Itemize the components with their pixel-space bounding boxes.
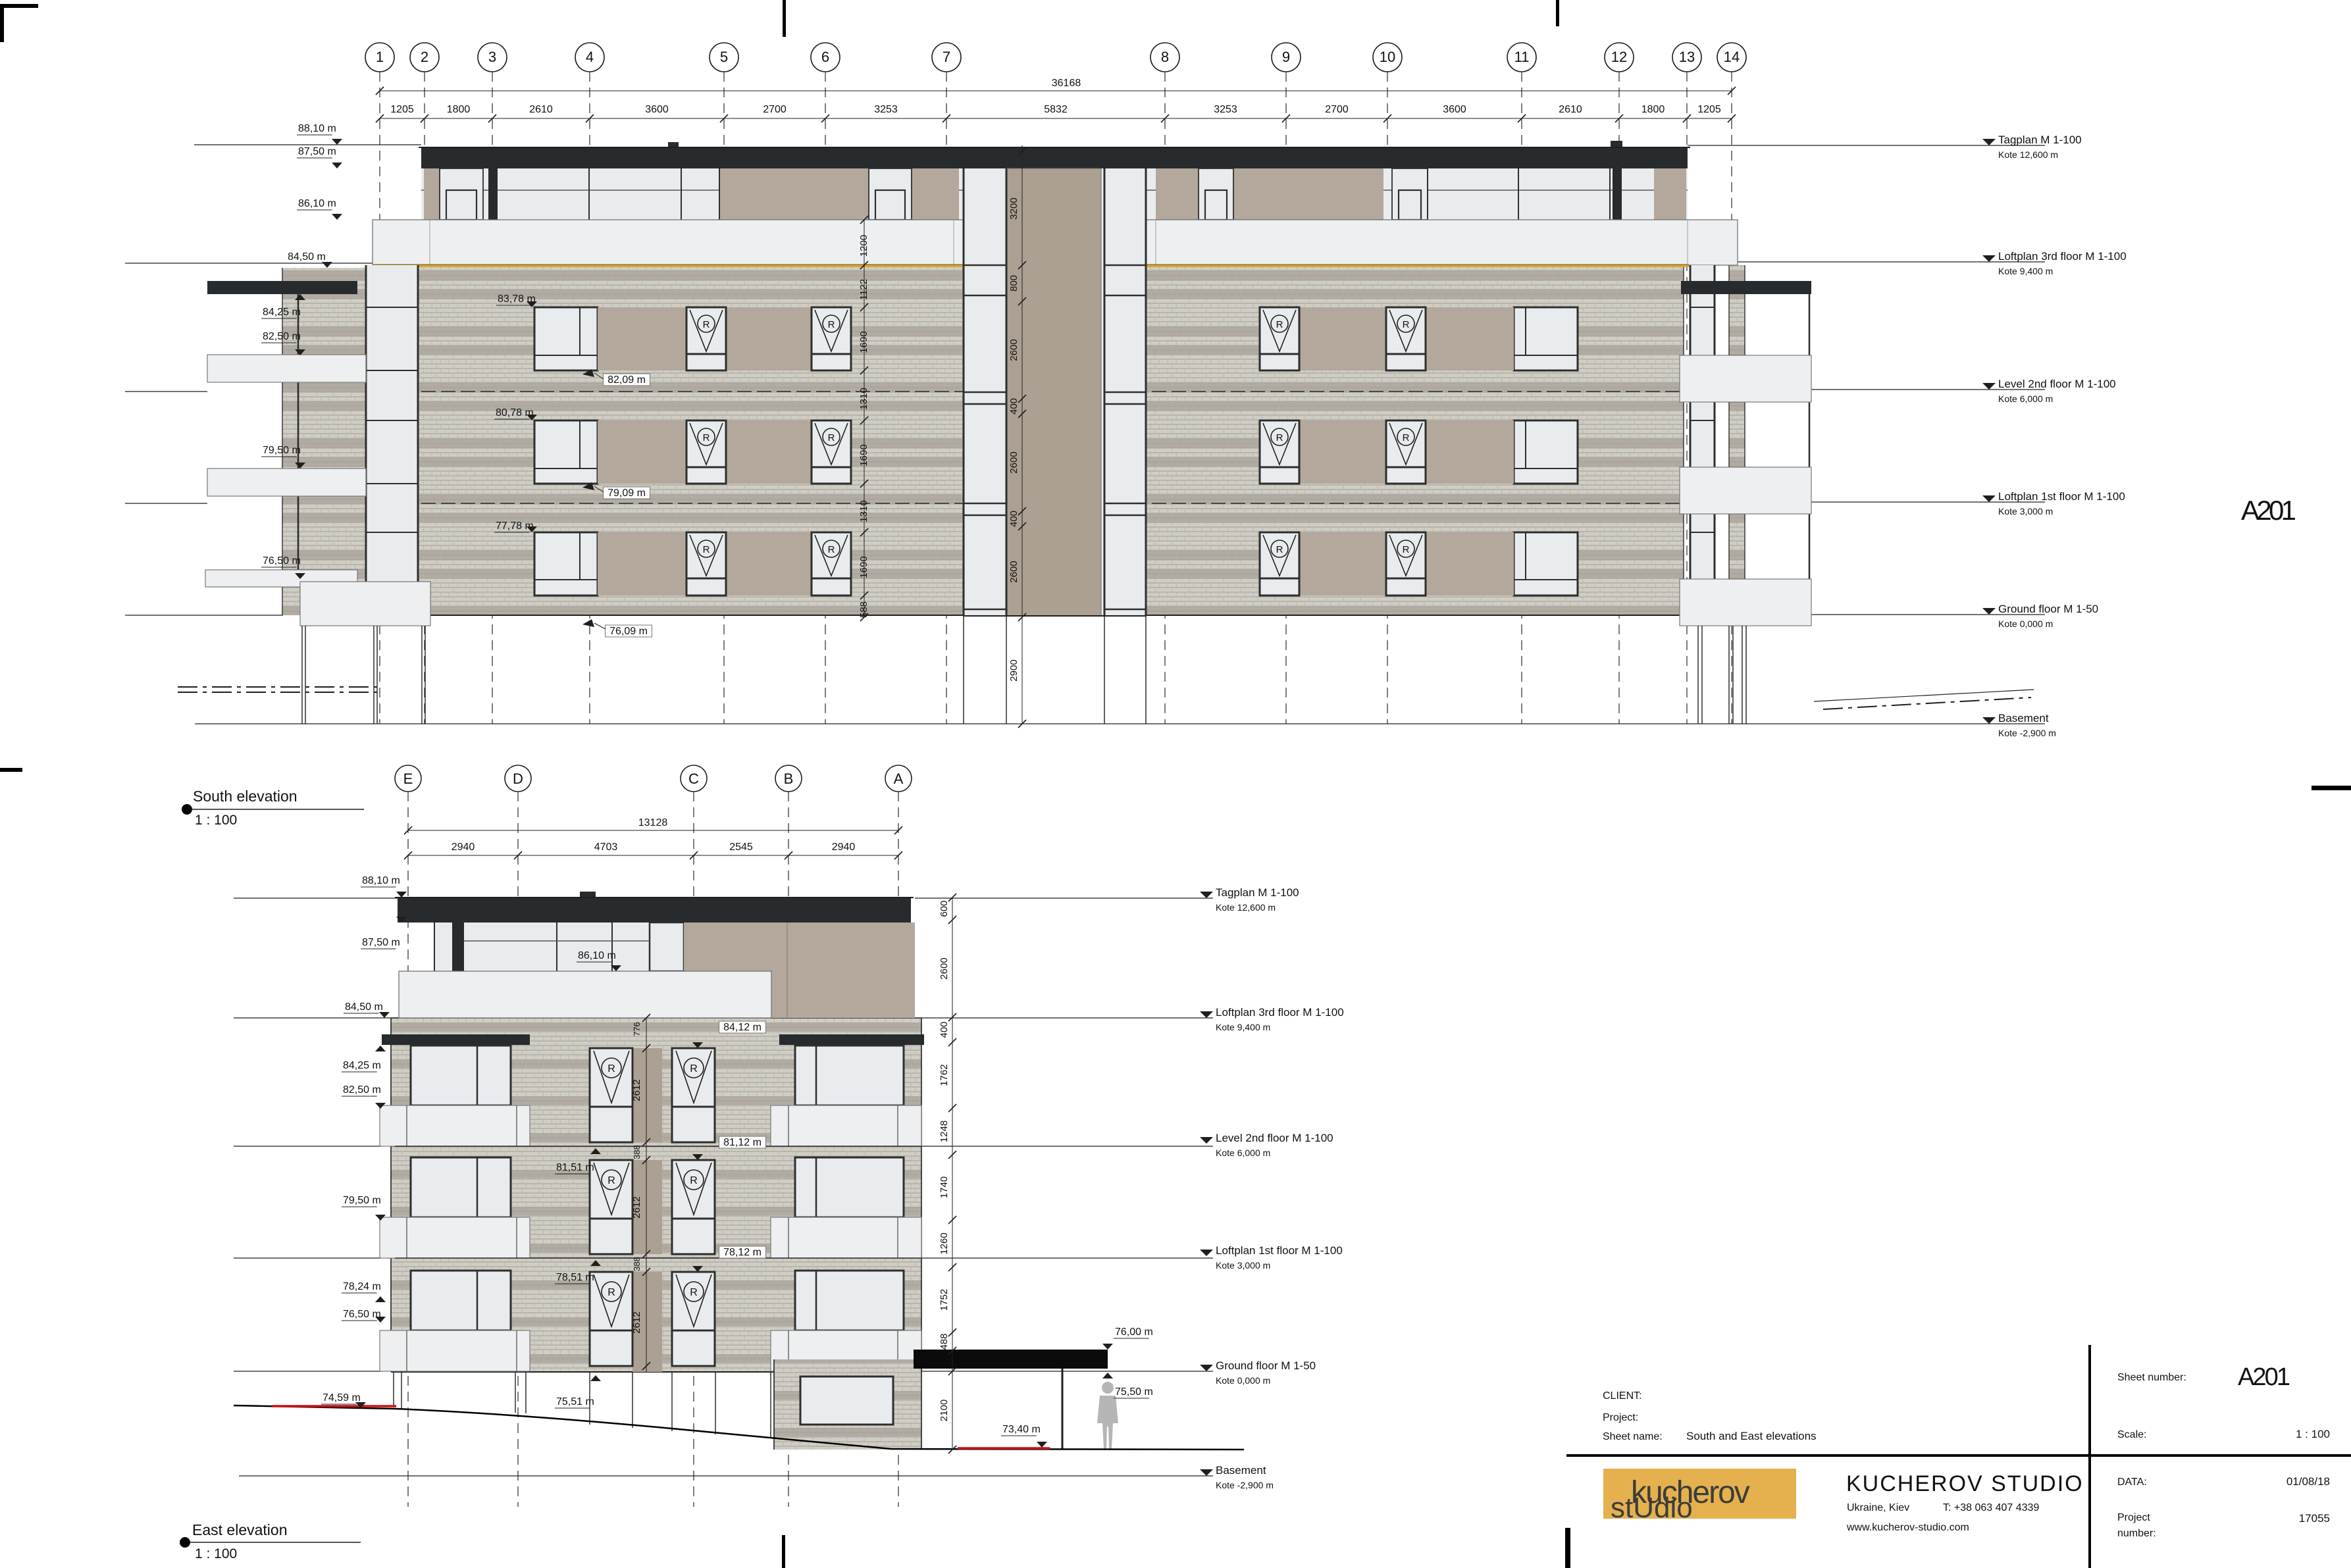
svg-text:79,09 m: 79,09 m [607,488,646,499]
svg-text:1248: 1248 [939,1121,950,1142]
svg-text:1310: 1310 [858,388,869,409]
svg-text:81,12 m: 81,12 m [723,1137,762,1148]
svg-text:79,50 m: 79,50 m [343,1195,381,1206]
svg-text:5: 5 [720,49,728,65]
svg-text:800: 800 [1008,275,1020,291]
svg-text:3200: 3200 [1008,197,1020,219]
svg-text:2545: 2545 [729,842,753,853]
svg-text:D: D [513,771,523,787]
svg-text:A: A [894,771,904,787]
svg-text:C: C [688,771,699,787]
svg-text:E: E [403,771,413,787]
svg-text:Ground floor M 1-50: Ground floor M 1-50 [1216,1359,1316,1372]
svg-text:Kote 0,000 m: Kote 0,000 m [1998,619,2053,629]
svg-text:77,78 m: 77,78 m [496,520,534,532]
svg-text:R: R [690,1175,698,1186]
svg-text:Level 2nd floor M 1-100: Level 2nd floor M 1-100 [1998,378,2116,390]
svg-text:Kote 6,000 m: Kote 6,000 m [1216,1148,1270,1158]
svg-text:1690: 1690 [858,331,869,353]
svg-text:17055: 17055 [2299,1512,2330,1525]
svg-text:84,50 m: 84,50 m [345,1001,383,1013]
svg-text:Kote 3,000 m: Kote 3,000 m [1216,1260,1270,1271]
svg-text:Loftplan 1st floor M 1-100: Loftplan 1st floor M 1-100 [1216,1244,1343,1257]
svg-text:588: 588 [858,601,869,618]
svg-text:2600: 2600 [1008,451,1020,473]
svg-text:75,50 m: 75,50 m [1115,1386,1153,1398]
svg-text:3600: 3600 [645,104,669,115]
svg-text:R: R [1403,319,1410,330]
svg-text:76,00 m: 76,00 m [1115,1327,1153,1338]
svg-text:Basement: Basement [1998,712,2049,724]
svg-text:3600: 3600 [1443,104,1466,115]
svg-text:R: R [703,544,710,555]
svg-text:75,51 m: 75,51 m [556,1396,594,1407]
svg-text:2940: 2940 [452,842,475,853]
svg-text:74,59 m: 74,59 m [323,1392,361,1404]
svg-text:84,25 m: 84,25 m [343,1060,381,1071]
svg-text:2600: 2600 [1008,561,1020,582]
svg-text:KUCHEROV STUDIO: KUCHEROV STUDIO [1846,1471,2084,1496]
svg-text:Scale:: Scale: [2117,1429,2146,1440]
svg-text:13128: 13128 [638,817,668,828]
svg-text:T: +38 063 407 4339: T: +38 063 407 4339 [1943,1502,2039,1513]
svg-text:82,50 m: 82,50 m [263,331,301,342]
svg-text:1740: 1740 [939,1176,950,1198]
svg-text:1: 1 [376,49,384,65]
svg-text:R: R [828,544,835,555]
svg-text:DATA:: DATA: [2117,1477,2147,1488]
svg-text:8: 8 [1161,49,1169,65]
svg-text:2900: 2900 [1008,659,1020,681]
svg-text:R: R [607,1063,615,1075]
svg-text:South and East elevations: South and East elevations [1686,1430,1817,1442]
svg-text:2940: 2940 [832,842,856,853]
svg-text:2700: 2700 [1325,104,1349,115]
svg-text:1800: 1800 [447,104,471,115]
svg-text:R: R [1276,544,1283,555]
svg-text:3253: 3253 [1214,104,1237,115]
svg-text:01/08/18: 01/08/18 [2286,1475,2330,1488]
svg-text:B: B [784,771,794,787]
svg-text:R: R [690,1287,698,1298]
svg-text:81,51 m: 81,51 m [556,1162,594,1173]
svg-text:2612: 2612 [631,1311,642,1333]
svg-text:488: 488 [939,1333,950,1350]
svg-text:R: R [828,432,835,443]
svg-text:13: 13 [1679,49,1695,65]
svg-text:Kote 3,000 m: Kote 3,000 m [1998,506,2053,517]
svg-text:76,50 m: 76,50 m [263,555,301,567]
svg-text:9: 9 [1282,49,1290,65]
svg-text:Tagplan M 1-100: Tagplan M 1-100 [1998,134,2082,146]
svg-text:84,12 m: 84,12 m [723,1022,762,1033]
svg-text:78,51 m: 78,51 m [556,1272,594,1283]
svg-text:1 : 100: 1 : 100 [195,813,237,828]
svg-text:East elevation: East elevation [192,1521,287,1538]
svg-text:R: R [1403,432,1410,443]
svg-text:1690: 1690 [858,444,869,466]
svg-text:86,10 m: 86,10 m [578,950,616,961]
svg-text:1 : 100: 1 : 100 [195,1546,237,1561]
svg-text:Loftplan 3rd floor M 1-100: Loftplan 3rd floor M 1-100 [1998,250,2127,263]
svg-text:4: 4 [586,49,594,65]
svg-text:14: 14 [1724,49,1740,65]
svg-text:400: 400 [1008,511,1020,527]
svg-text:R: R [1403,544,1410,555]
svg-text:12: 12 [1611,49,1627,65]
svg-text:R: R [607,1175,615,1186]
svg-text:1 : 100: 1 : 100 [2296,1428,2330,1440]
svg-text:78,24 m: 78,24 m [343,1281,381,1292]
svg-text:Loftplan 1st floor M 1-100: Loftplan 1st floor M 1-100 [1998,490,2125,503]
svg-text:Sheet number:: Sheet number: [2117,1372,2186,1383]
svg-text:3: 3 [488,49,496,65]
svg-text:R: R [607,1287,615,1298]
svg-text:A201: A201 [2238,1363,2290,1391]
svg-text:1200: 1200 [858,235,869,257]
svg-text:Ground floor M 1-50: Ground floor M 1-50 [1998,603,2098,615]
svg-text:South elevation: South elevation [193,788,297,805]
svg-text:73,40 m: 73,40 m [1002,1424,1041,1435]
svg-text:5832: 5832 [1044,104,1068,115]
svg-text:CLIENT:: CLIENT: [1603,1390,1642,1402]
svg-text:1122: 1122 [858,279,869,300]
svg-text:Ukraine, Kiev: Ukraine, Kiev [1847,1502,1909,1513]
svg-text:76,09 m: 76,09 m [609,626,648,637]
svg-text:600: 600 [939,900,950,917]
svg-text:400: 400 [1008,398,1020,415]
svg-text:76,50 m: 76,50 m [343,1309,381,1320]
svg-text:1260: 1260 [939,1232,950,1254]
svg-text:Loftplan 3rd floor M 1-100: Loftplan 3rd floor M 1-100 [1216,1006,1344,1019]
svg-text:88,10 m: 88,10 m [362,875,400,886]
svg-text:4703: 4703 [594,842,618,853]
svg-text:Kote 9,400 m: Kote 9,400 m [1216,1022,1270,1032]
svg-text:78,12 m: 78,12 m [723,1247,762,1258]
svg-text:6: 6 [821,49,829,65]
svg-text:388: 388 [632,1257,642,1271]
svg-text:stUdio: stUdio [1611,1492,1693,1524]
svg-text:1752: 1752 [939,1289,950,1311]
svg-text:2610: 2610 [1559,104,1582,115]
svg-text:88,10 m: 88,10 m [298,123,336,134]
svg-text:2700: 2700 [763,104,787,115]
svg-text:11: 11 [1514,49,1530,65]
svg-text:Kote 12,600 m: Kote 12,600 m [1998,149,2058,160]
svg-text:1205: 1205 [390,104,414,115]
svg-text:R: R [1276,319,1283,330]
svg-text:R: R [690,1063,698,1075]
svg-text:Kote 6,000 m: Kote 6,000 m [1998,393,2053,404]
svg-text:2610: 2610 [529,104,553,115]
svg-text:1800: 1800 [1641,104,1665,115]
svg-text:10: 10 [1380,49,1395,65]
svg-text:2612: 2612 [631,1079,642,1101]
svg-text:400: 400 [939,1021,950,1038]
svg-text:82,50 m: 82,50 m [343,1084,381,1096]
svg-text:Kote -2,900 m: Kote -2,900 m [1216,1480,1274,1490]
svg-text:388: 388 [632,1145,642,1159]
svg-text:2612: 2612 [631,1196,642,1218]
svg-text:number:: number: [2117,1528,2156,1539]
svg-text:84,50 m: 84,50 m [288,251,326,263]
svg-text:87,50 m: 87,50 m [298,146,336,157]
svg-text:776: 776 [632,1022,642,1036]
svg-text:3253: 3253 [874,104,898,115]
svg-text:R: R [703,319,710,330]
svg-text:2600: 2600 [939,957,950,979]
svg-text:Project:: Project: [1603,1412,1638,1423]
svg-text:Kote 0,000 m: Kote 0,000 m [1216,1375,1270,1386]
svg-text:1690: 1690 [858,556,869,578]
svg-text:79,50 m: 79,50 m [263,445,301,456]
svg-text:36168: 36168 [1052,78,1081,89]
svg-text:R: R [828,319,835,330]
svg-text:86,10 m: 86,10 m [298,198,336,209]
svg-text:Project: Project [2117,1512,2150,1523]
svg-text:87,50 m: 87,50 m [362,937,400,948]
svg-text:Basement: Basement [1216,1464,1266,1477]
svg-text:1762: 1762 [939,1064,950,1086]
svg-text:7: 7 [943,49,950,65]
svg-text:Kote -2,900 m: Kote -2,900 m [1998,728,2056,738]
svg-text:Sheet name:: Sheet name: [1603,1431,1663,1442]
svg-text:82,09 m: 82,09 m [607,374,646,386]
svg-text:R: R [703,432,710,443]
svg-text:R: R [1276,432,1283,443]
svg-text:1205: 1205 [1697,104,1721,115]
svg-text:1310: 1310 [858,500,869,522]
svg-text:2600: 2600 [1008,339,1020,361]
svg-text:2: 2 [421,49,428,65]
svg-text:80,78 m: 80,78 m [496,407,534,418]
svg-text:Level 2nd floor M 1-100: Level 2nd floor M 1-100 [1216,1132,1333,1144]
svg-text:Kote 9,400 m: Kote 9,400 m [1998,266,2053,276]
svg-text:2100: 2100 [939,1400,950,1421]
svg-text:Kote 12,600 m: Kote 12,600 m [1216,902,1276,913]
svg-text:A201: A201 [2241,495,2296,526]
svg-text:84,25 m: 84,25 m [263,307,301,318]
svg-text:Tagplan M 1-100: Tagplan M 1-100 [1216,886,1299,899]
svg-text:www.kucherov-studio.com: www.kucherov-studio.com [1846,1522,1969,1533]
